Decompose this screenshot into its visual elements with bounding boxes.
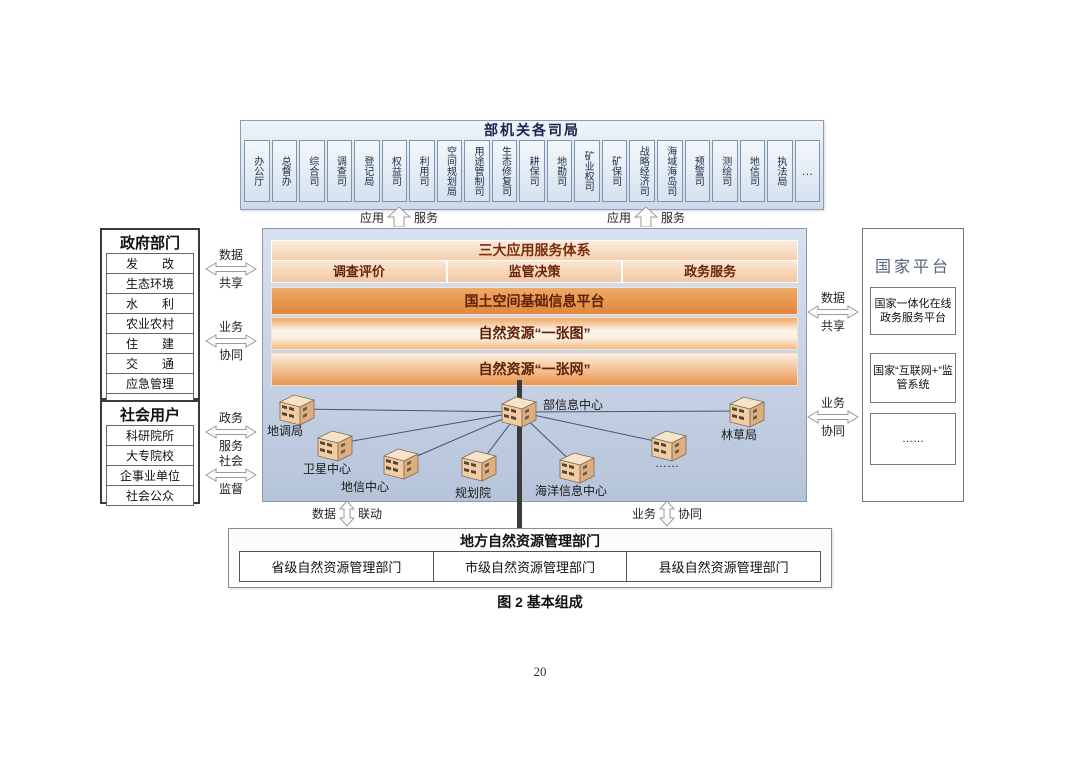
service-cell: 调查评价	[271, 260, 447, 283]
building-icon	[315, 428, 355, 464]
double-arrow-icon	[205, 468, 257, 482]
double-arrow-icon	[807, 410, 859, 424]
national-platform-title: 国家平台	[863, 253, 963, 277]
social-item: 企事业单位	[106, 465, 194, 486]
app-label: 应用	[360, 209, 384, 226]
social-box-title: 社会用户	[102, 402, 198, 426]
arrow-bottom-label: 监督	[219, 482, 243, 496]
local-cell-county: 县级自然资源管理部门	[626, 552, 820, 581]
ministry-dept: 耕保司	[519, 140, 545, 202]
national-platform-item: 国家“互联网+”监管系统	[870, 353, 956, 403]
local-cell-province: 省级自然资源管理部门	[240, 552, 433, 581]
data-linkage-link: 数据 联动	[312, 500, 382, 527]
building-icon	[727, 394, 767, 430]
node-label: 规划院	[455, 484, 491, 501]
node-label: 部信息中心	[543, 396, 603, 413]
ministry-departments-box: 部机关各司局 办公厅 总督办 综合司 调查司 登记局 权益司 利用司 空间规划局…	[240, 120, 824, 210]
government-item: 农业农村	[106, 313, 194, 334]
social-users-box: 社会用户 科研院所 大专院校 企事业单位 社会公众	[100, 400, 200, 504]
arrow-top-label: 政务	[219, 411, 243, 425]
app-service-link-left: 应用 服务	[360, 207, 438, 227]
arrow-top-label: 业务	[219, 320, 243, 334]
social-item: 科研院所	[106, 425, 194, 446]
node-geological-survey: 地调局	[277, 392, 317, 428]
ministry-dept: 权益司	[382, 140, 408, 202]
ministry-dept: 生态修复司	[492, 140, 518, 202]
government-item: 发 改	[106, 253, 194, 274]
government-item: 生态环境	[106, 273, 194, 294]
ministry-dept: 矿保司	[602, 140, 628, 202]
government-item: 应急管理	[106, 373, 194, 394]
node-ellipsis: ……	[649, 428, 689, 464]
ministry-dept-ellipsis: …	[795, 140, 821, 202]
local-cell-city: 市级自然资源管理部门	[433, 552, 627, 581]
double-arrow-icon	[205, 334, 257, 348]
ministry-dept: 空间规划局	[437, 140, 463, 202]
social-item: 社会公众	[106, 485, 194, 506]
ministry-dept: 登记局	[354, 140, 380, 202]
government-departments-box: 政府部门 发 改 生态环境 水 利 农业农村 住 建 交 通 应急管理 ……	[100, 228, 200, 400]
building-icon	[459, 448, 499, 484]
arrow-right-label: 协同	[678, 505, 702, 522]
government-box-title: 政府部门	[102, 230, 198, 254]
arrow-bottom-label: 协同	[821, 424, 845, 438]
up-arrow-icon	[634, 207, 658, 227]
ministry-dept: 执法局	[767, 140, 793, 202]
government-item: 交 通	[106, 353, 194, 374]
data-share-link-left: 数据 共享	[201, 248, 261, 290]
vertical-double-arrow-icon	[339, 500, 355, 527]
node-label: 地信中心	[341, 478, 389, 495]
up-arrow-icon	[387, 207, 411, 227]
arrow-top-label: 业务	[821, 396, 845, 410]
arrow-bottom-label: 协同	[219, 348, 243, 362]
ministry-dept: 用途管制司	[464, 140, 490, 202]
social-item: 大专院校	[106, 445, 194, 466]
service-label: 服务	[661, 209, 685, 226]
app-service-link-right: 应用 服务	[607, 207, 685, 227]
node-forestry-grassland: 林草局	[727, 394, 767, 430]
data-share-link-right: 数据 共享	[803, 291, 863, 333]
ministry-dept: 战略经济司	[629, 140, 655, 202]
service-cell: 政务服务	[622, 260, 798, 283]
figure-caption: 图 2 基本组成	[0, 592, 1080, 612]
central-platform-panel: 三大应用服务体系 调查评价 监管决策 政务服务 国土空间基础信息平台 自然资源“…	[262, 228, 807, 502]
arrow-bottom-label: 服务	[219, 439, 243, 453]
government-list: 发 改 生态环境 水 利 农业农村 住 建 交 通 应急管理 ……	[106, 253, 194, 411]
ministry-columns: 办公厅 总督办 综合司 调查司 登记局 权益司 利用司 空间规划局 用途管制司 …	[241, 140, 823, 206]
social-list: 科研院所 大专院校 企事业单位 社会公众	[106, 425, 194, 506]
arrow-left-label: 数据	[312, 505, 336, 522]
arrow-right-label: 联动	[358, 505, 382, 522]
building-icon	[381, 446, 421, 482]
app-label: 应用	[607, 209, 631, 226]
ministry-dept: 办公厅	[244, 140, 270, 202]
ministry-dept: 矿业权司	[574, 140, 600, 202]
social-supervision-link: 社会 监督	[201, 454, 261, 496]
ministry-dept: 预警司	[685, 140, 711, 202]
node-geoinfo-center: 地信中心	[381, 446, 421, 482]
service-cell: 监管决策	[447, 260, 623, 283]
local-cells-row: 省级自然资源管理部门 市级自然资源管理部门 县级自然资源管理部门	[239, 551, 821, 582]
node-ministry-info-center: 部信息中心	[499, 394, 539, 430]
double-arrow-icon	[205, 262, 257, 276]
ministry-dept: 利用司	[409, 140, 435, 202]
national-platform-item: 国家一体化在线政务服务平台	[870, 287, 956, 335]
ministry-dept: 地勘司	[547, 140, 573, 202]
base-info-platform-bar: 国土空间基础信息平台	[271, 287, 798, 315]
service-label: 服务	[414, 209, 438, 226]
arrow-bottom-label: 共享	[821, 319, 845, 333]
node-label: 海洋信息中心	[535, 482, 607, 499]
business-collab-link-left: 业务 协同	[201, 320, 261, 362]
national-platform-item-ellipsis: ……	[870, 413, 956, 465]
ministry-dept: 总督办	[272, 140, 298, 202]
node-planning-institute: 规划院	[459, 448, 499, 484]
business-collab-link-bottom: 业务 协同	[632, 500, 702, 527]
ministry-box-title: 部机关各司局	[241, 121, 823, 140]
service-row: 调查评价 监管决策 政务服务	[271, 260, 798, 283]
building-icon	[557, 450, 597, 486]
arrow-bottom-label: 共享	[219, 276, 243, 290]
double-arrow-icon	[205, 425, 257, 439]
arrow-left-label: 业务	[632, 505, 656, 522]
local-box-title: 地方自然资源管理部门	[229, 529, 831, 551]
double-arrow-icon	[807, 305, 859, 319]
node-label: 林草局	[721, 426, 757, 443]
arrow-top-label: 社会	[219, 454, 243, 468]
national-platform-box: 国家平台 国家一体化在线政务服务平台 国家“互联网+”监管系统 ……	[862, 228, 964, 502]
one-network-bar: 自然资源“一张网”	[271, 353, 798, 386]
arrow-top-label: 数据	[219, 248, 243, 262]
page-number: 20	[0, 664, 1080, 680]
node-marine-info-center: 海洋信息中心	[557, 450, 597, 486]
local-departments-box: 地方自然资源管理部门 省级自然资源管理部门 市级自然资源管理部门 县级自然资源管…	[228, 528, 832, 588]
ministry-dept: 地信司	[740, 140, 766, 202]
arrow-top-label: 数据	[821, 291, 845, 305]
application-service-system-header: 三大应用服务体系	[271, 240, 798, 261]
gov-service-link: 政务 服务	[201, 411, 261, 453]
node-label: 卫星中心	[303, 460, 351, 477]
node-satellite-center: 卫星中心	[315, 428, 355, 464]
ministry-dept: 海域海岛司	[657, 140, 683, 202]
government-item: 住 建	[106, 333, 194, 354]
business-collab-link-right: 业务 协同	[803, 396, 863, 438]
ministry-dept: 调查司	[327, 140, 353, 202]
network-diagram: 地调局 卫星中心 地信中心 规划院 部信息中心 海洋信息中心	[263, 384, 806, 501]
ministry-dept: 测绘司	[712, 140, 738, 202]
document-page: 部机关各司局 办公厅 总督办 综合司 调查司 登记局 权益司 利用司 空间规划局…	[0, 0, 1080, 760]
government-item: 水 利	[106, 293, 194, 314]
ministry-dept: 综合司	[299, 140, 325, 202]
vertical-double-arrow-icon	[659, 500, 675, 527]
one-map-bar: 自然资源“一张图”	[271, 317, 798, 350]
building-icon	[499, 394, 539, 430]
node-label: 地调局	[267, 422, 303, 439]
node-label: ……	[655, 456, 679, 470]
